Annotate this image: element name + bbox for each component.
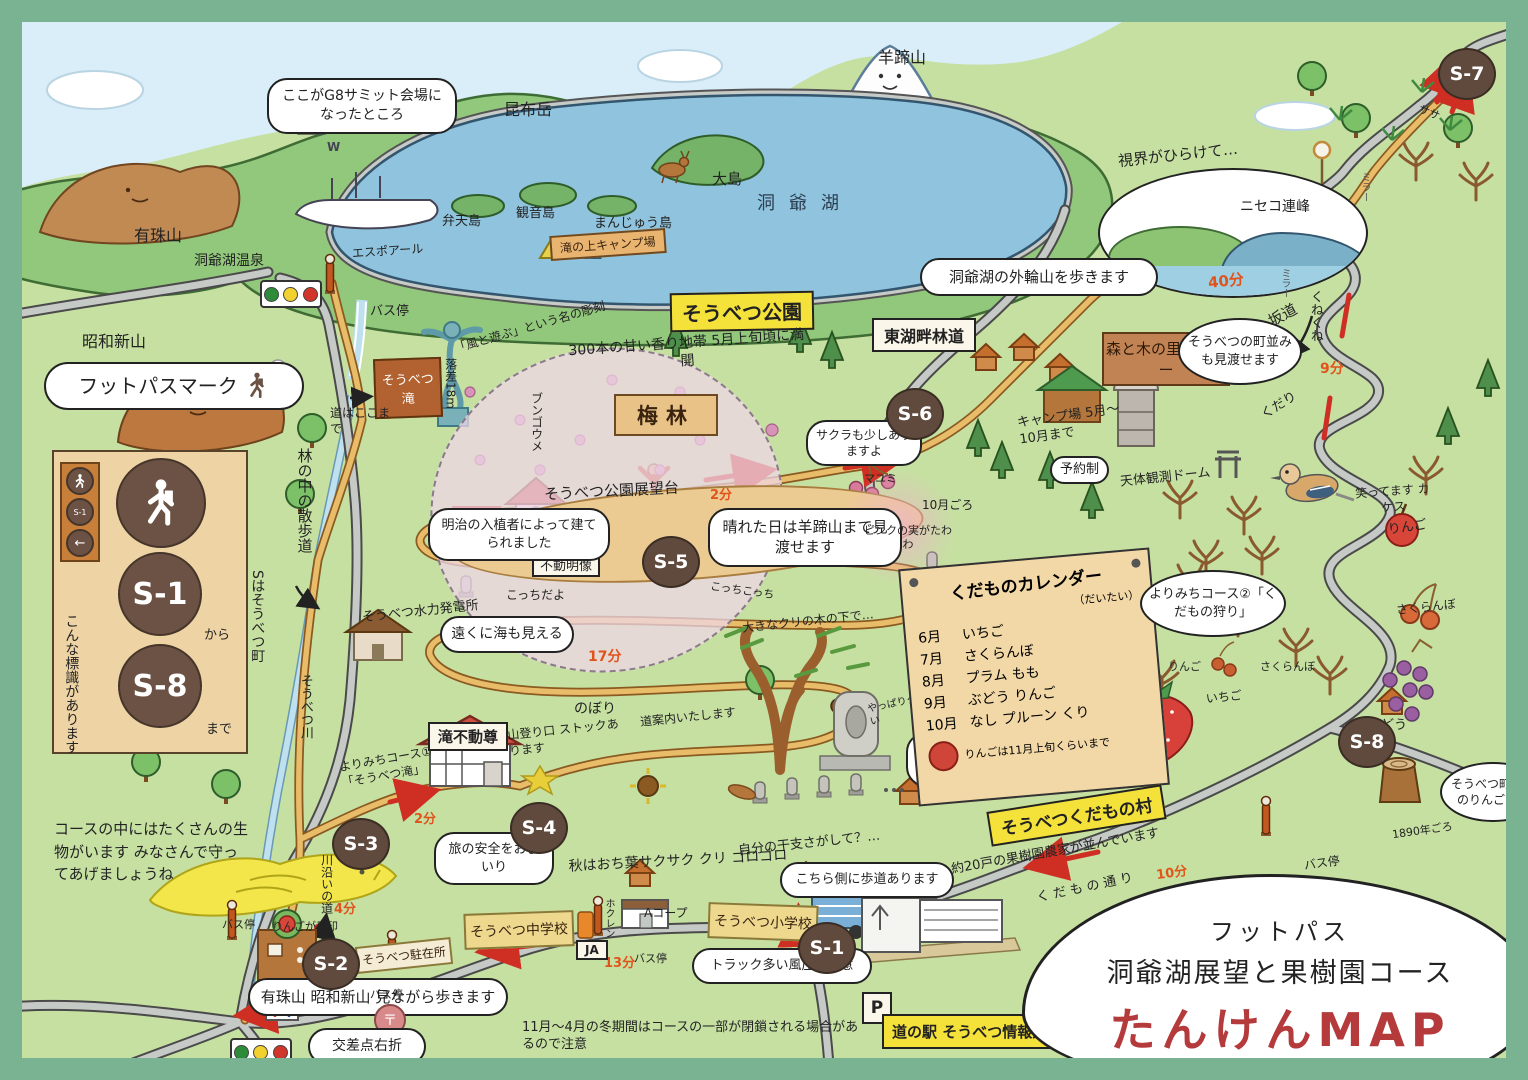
mini-arrow-icon: ← bbox=[66, 529, 94, 557]
bus-stop-east-label: バス停 bbox=[370, 988, 403, 1002]
sea-view-bubble: 遠くに海も見える bbox=[440, 616, 574, 653]
walker-icon-large bbox=[138, 476, 184, 530]
sidewalk-text: こちら側に歩道あります bbox=[795, 872, 938, 887]
red-light bbox=[303, 287, 318, 302]
legend-signboard: S-1 ← S-1 から S-8 まで bbox=[52, 450, 248, 754]
g8-summit-bubble: ここがG8サミット会場になったところ bbox=[267, 78, 457, 134]
fudo-statue-text: 不動明像 bbox=[540, 559, 592, 574]
winter-note: 11月～4月の冬期間はコースの一部が閉鎖される場合があるので注意 bbox=[522, 1020, 867, 1054]
fruit-calendar-board: くだものカレンダー （だいたい） 6月いちご 7月さくらんぼ 8月プラム もも … bbox=[898, 547, 1170, 806]
oshima-label: 大島 bbox=[712, 170, 742, 190]
legend-s1-text: S-1 bbox=[133, 577, 188, 612]
lake-toya-label: 洞爺湖 bbox=[757, 192, 853, 215]
sobetsu-falls-text: そうべつ滝 bbox=[375, 368, 440, 408]
apple-landmark-label: りんごが目印 bbox=[272, 920, 338, 934]
mayumi-month-label: 10月ごろ bbox=[922, 498, 973, 514]
legend-to: まで bbox=[206, 722, 232, 739]
onsen-label: 洞爺湖温泉 bbox=[194, 252, 264, 270]
time-park: 2分 bbox=[710, 484, 732, 503]
rim-walk-bubble: 洞爺湖の外輪山を歩きます bbox=[920, 258, 1158, 296]
legend-walker-circle bbox=[116, 458, 206, 548]
traffic-light-crossing bbox=[230, 1038, 292, 1066]
ja-text: JA bbox=[585, 943, 599, 957]
green-light bbox=[264, 287, 279, 302]
traffic-light-onsen bbox=[260, 280, 322, 308]
station-s4-text: S-4 bbox=[522, 817, 557, 839]
red-light-2 bbox=[273, 1045, 288, 1060]
taki-fudoson-text: 滝不動尊 bbox=[438, 728, 498, 746]
green-light-2 bbox=[234, 1045, 249, 1060]
crossing-text: 交差点右折 bbox=[332, 1038, 402, 1054]
time-school-street: 13分 bbox=[604, 952, 635, 971]
cal-fruit-6: いちご bbox=[961, 623, 1004, 643]
uphill-label: のぼり bbox=[574, 700, 616, 718]
time-riverside: 4分 bbox=[334, 898, 356, 917]
sea-view-text: 遠くに海も見える bbox=[451, 626, 563, 642]
time-slope: 9分 bbox=[1320, 358, 1344, 378]
g8-summit-text: ここがG8サミット会場になったところ bbox=[282, 88, 442, 123]
mayumi-label: マユミ bbox=[864, 472, 897, 486]
jay-label: 笑ってます カケス bbox=[1351, 481, 1435, 518]
meiji-text: 明治の入植者によって建てられました bbox=[442, 518, 597, 551]
station-s6-text: S-6 bbox=[898, 403, 933, 425]
bentenjima-label: 弁天島 bbox=[442, 214, 481, 231]
legend-mini-post: S-1 ← bbox=[60, 462, 100, 562]
mayumi-note-label: ピンクの実がたわわ bbox=[860, 524, 956, 553]
station-s5-text: S-5 bbox=[654, 551, 689, 573]
mini-walker-icon bbox=[66, 467, 94, 495]
meiji-bubble: 明治の入植者によって建てられました bbox=[428, 508, 610, 561]
sobetsu-river-label: そうべつ川 bbox=[296, 674, 313, 764]
walker-icon bbox=[244, 371, 270, 401]
station-s2: S-2 bbox=[302, 938, 360, 990]
windsor-hotel-label: W bbox=[327, 140, 340, 156]
calendar-apple-icon bbox=[927, 739, 960, 772]
sobetsu-park-text: そうべつ公園 bbox=[682, 300, 802, 326]
acoop-label: Aコープ bbox=[644, 906, 688, 922]
bus-stop-label-lake: バス停 bbox=[370, 304, 409, 321]
station-s8-text: S-8 bbox=[1350, 731, 1385, 753]
station-s2-text: S-2 bbox=[314, 953, 349, 975]
niseko-label: ニセコ連峰 bbox=[1240, 198, 1310, 216]
cherry-small-label: さくらんぼ bbox=[1260, 660, 1315, 674]
reserve-text: 予約制 bbox=[1060, 462, 1099, 477]
time-falls: 2分 bbox=[414, 808, 436, 827]
legend-s8-circle: S-8 bbox=[118, 644, 202, 728]
title-name: たんけんMAP bbox=[1109, 994, 1450, 1060]
wildlife-note: コースの中にはたくさんの生物がいます みなさんで守ってあげましょうね bbox=[54, 818, 250, 886]
yellow-light bbox=[283, 287, 298, 302]
plum-grove-text: 梅林 bbox=[637, 404, 695, 428]
legend-s8-text: S-8 bbox=[133, 669, 188, 704]
cal-fruit-7: さくらんぼ bbox=[963, 643, 1034, 665]
footpath-mark-heading: フットパスマーク bbox=[78, 373, 237, 400]
time-rim: 40分 bbox=[1207, 268, 1245, 293]
mini-s1-icon: S-1 bbox=[66, 498, 94, 526]
station-s1-text: S-1 bbox=[810, 937, 845, 959]
townscape-text: そうべつの町並みも見渡せます bbox=[1188, 335, 1292, 368]
title-kicker: フットパス bbox=[1210, 912, 1350, 947]
station-s7: S-7 bbox=[1438, 48, 1496, 100]
junior-high-text: そうべつ中学校 bbox=[470, 921, 568, 940]
yoteizan-label: 羊蹄山 bbox=[878, 48, 926, 69]
taki-fudoson-sign: 滝不動尊 bbox=[428, 722, 508, 751]
station-s4: S-4 bbox=[510, 802, 568, 854]
kannonjima-label: 観音島 bbox=[516, 206, 555, 223]
yellow-light-2 bbox=[253, 1045, 268, 1060]
plum-grove-sign: 梅林 bbox=[614, 394, 718, 436]
hand-drawn-footpath-map: ここがG8サミット会場になったところ W 昆布岳 羊蹄山 洞爺湖 大島 弁天島 … bbox=[0, 0, 1528, 1080]
station-s8: S-8 bbox=[1338, 716, 1396, 768]
rindo-text: 東湖畔林道 bbox=[884, 327, 964, 346]
legend-s-meaning: Sはそうべつ町 bbox=[248, 570, 266, 730]
bungo-ume-label: ブンゴウメ bbox=[528, 392, 544, 482]
legend-from: から bbox=[204, 628, 230, 645]
takinoue-camp-text: 滝の上キャンプ場 bbox=[560, 235, 656, 256]
showa-shinzan-label: 昭和新山 bbox=[82, 332, 146, 353]
station-s7-text: S-7 bbox=[1450, 63, 1485, 85]
apple-small-label: りんご bbox=[1168, 660, 1201, 674]
konbudake-label: 昆布岳 bbox=[504, 100, 552, 121]
police-text: そうべつ駐在所 bbox=[362, 945, 447, 968]
road-end-label: 道はここまで bbox=[330, 406, 392, 437]
hokuren-label: ホクレン bbox=[602, 898, 615, 954]
rim-walk-text: 洞爺湖の外輪山を歩きます bbox=[949, 268, 1129, 286]
station-s3: S-3 bbox=[332, 818, 390, 870]
station-s5: S-5 bbox=[642, 536, 700, 588]
time-switchback: 17分 bbox=[588, 646, 621, 666]
station-s1: S-1 bbox=[798, 922, 856, 974]
legend-s1-circle: S-1 bbox=[118, 552, 202, 636]
sidewalk-bubble: こちら側に歩道あります bbox=[780, 862, 954, 898]
bus-stop-school-label: バス停 bbox=[634, 952, 667, 966]
cal-month-10: 10月 bbox=[925, 712, 971, 738]
calendar-note: りんごは11月上旬くらいまで bbox=[964, 733, 1111, 762]
usuzan-label: 有珠山 bbox=[134, 226, 182, 247]
rindo-sign: 東湖畔林道 bbox=[872, 318, 976, 352]
mirror-label-1: ミラー bbox=[1358, 172, 1371, 222]
side-course2-bubble: よりみちコース②「くだもの狩り」 bbox=[1140, 570, 1286, 637]
townscape-bubble: そうべつの町並みも見渡せます bbox=[1178, 318, 1302, 385]
old-apple-stump-icon bbox=[1380, 758, 1420, 802]
title-course: 洞爺湖展望と果樹園コース bbox=[1107, 951, 1454, 990]
station-s3-text: S-3 bbox=[344, 833, 379, 855]
crossing-bubble: 交差点右折 bbox=[308, 1028, 426, 1065]
kocchi1-label: こっちだよ bbox=[506, 588, 565, 604]
old-tree-text: そうべつ町最古のりんごの木 bbox=[1451, 777, 1528, 807]
footpath-mark-cloud: フットパスマーク bbox=[44, 362, 304, 410]
bus-stop-west-label: バス停 bbox=[222, 918, 255, 932]
legend-note: こんな標識があります bbox=[62, 614, 80, 744]
forest-path-label: 林の中の散歩道 bbox=[294, 448, 314, 608]
elementary-text: そうべつ小学校 bbox=[714, 913, 812, 932]
junior-high-sign: そうべつ中学校 bbox=[463, 910, 574, 950]
reserve-bubble: 予約制 bbox=[1050, 456, 1109, 484]
station-s6: S-6 bbox=[886, 388, 944, 440]
side-course2-text: よりみちコース②「くだもの狩り」 bbox=[1149, 587, 1277, 620]
post-office-text: 〒 bbox=[383, 1010, 397, 1030]
falls-drop-label: 落差18m bbox=[442, 358, 458, 428]
